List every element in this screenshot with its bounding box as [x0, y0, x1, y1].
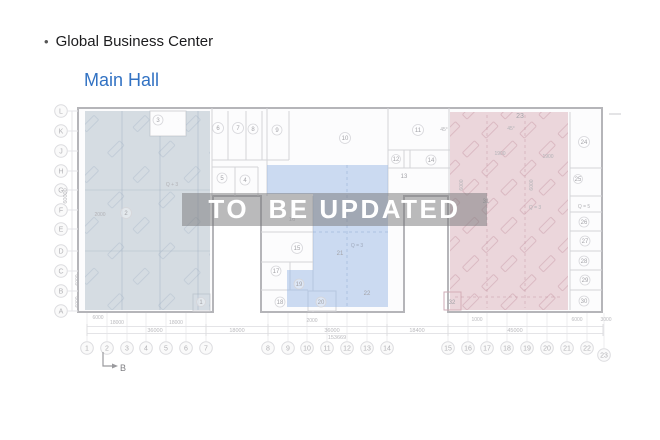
- dimension: 18000: [229, 328, 244, 334]
- dimension: 18000: [110, 320, 124, 326]
- room-label: 26: [581, 220, 588, 226]
- room-label: 29: [582, 278, 589, 284]
- col-label: 23: [600, 352, 608, 359]
- col-label: 19: [523, 345, 531, 352]
- room-label: 18: [277, 300, 284, 306]
- col-label: 9: [286, 345, 290, 352]
- col-label: 21: [563, 345, 571, 352]
- angle-note: 45°: [440, 127, 448, 133]
- col-label: 16: [464, 345, 472, 352]
- dimension: 6000: [571, 317, 582, 323]
- inner-dimension: 1900: [542, 154, 553, 160]
- inner-dimension: 6000: [459, 179, 465, 190]
- dimension: 6000: [75, 274, 81, 285]
- capacity-note: Q = 3: [529, 205, 542, 211]
- dimension: 18000: [169, 320, 183, 326]
- row-label: H: [58, 168, 63, 175]
- row-label: D: [58, 248, 63, 255]
- inner-dimension: 6000: [529, 179, 535, 190]
- watermark-text: TO BE UPDATED: [208, 194, 460, 225]
- room-label: 30: [581, 299, 588, 305]
- dimension: 60000: [63, 188, 69, 203]
- room-label: 13: [401, 174, 408, 180]
- dimension: 1000: [471, 317, 482, 323]
- room-label: 27: [582, 239, 589, 245]
- dimension: 2000: [306, 318, 317, 324]
- slide: • Global Business Center Main Hall: [0, 0, 660, 440]
- row-label: L: [59, 108, 63, 115]
- dimension: 6000: [75, 296, 81, 307]
- col-label: 22: [583, 345, 591, 352]
- col-label: 20: [543, 345, 551, 352]
- row-label: A: [59, 308, 64, 315]
- room-label: 32: [449, 300, 456, 306]
- dimension: 3000: [600, 317, 611, 323]
- room-label: 15: [294, 246, 301, 252]
- capacity-note: Q = 3: [351, 243, 364, 249]
- col-label: 4: [144, 345, 148, 352]
- col-label: 1: [85, 345, 89, 352]
- room-label: 10: [342, 136, 349, 142]
- row-label: E: [59, 226, 64, 233]
- room-label: 21: [337, 251, 344, 257]
- col-label: 13: [363, 345, 371, 352]
- room-label: 20: [318, 300, 325, 306]
- room-label: 28: [581, 259, 588, 265]
- col-label: 8: [266, 345, 270, 352]
- col-label: 11: [323, 345, 330, 352]
- col-label: 14: [383, 345, 391, 352]
- total-dimension: 153669: [328, 335, 346, 341]
- room-label: 24: [581, 140, 588, 146]
- dimension: 36000: [324, 328, 339, 334]
- room-label: 25: [575, 177, 582, 183]
- row-label: K: [59, 128, 64, 135]
- row-label: F: [59, 207, 63, 214]
- dimension: 6000: [92, 315, 103, 321]
- room-label: 17: [273, 269, 280, 275]
- dimension: 18400: [409, 328, 424, 334]
- room-label: 19: [296, 282, 303, 288]
- capacity-note: Q = 5: [578, 204, 591, 210]
- section-marker-label: B: [120, 363, 126, 373]
- capacity-note: Q + 3: [166, 182, 179, 188]
- col-label: 10: [303, 345, 311, 352]
- col-label: 12: [343, 345, 351, 352]
- section-marker: B: [103, 352, 126, 373]
- inner-dimension: 1900: [494, 151, 505, 157]
- watermark-band: TO BE UPDATED: [182, 193, 487, 226]
- col-label: 6: [184, 345, 188, 352]
- row-label: B: [59, 288, 64, 295]
- col-label: 15: [444, 345, 452, 352]
- col-label: 3: [125, 345, 129, 352]
- col-label: 17: [483, 345, 491, 352]
- room-label: 22: [364, 291, 371, 297]
- room-label: 23: [516, 113, 524, 120]
- inner-dimension: 2000: [94, 212, 105, 218]
- room-label: 12: [393, 157, 400, 163]
- col-label: 18: [503, 345, 511, 352]
- dimension: 45000: [507, 328, 522, 334]
- col-label: 5: [164, 345, 168, 352]
- col-label: 7: [204, 345, 208, 352]
- col-label: 2: [105, 345, 109, 352]
- angle-note: 45°: [507, 126, 515, 132]
- room-label: 14: [428, 158, 435, 164]
- dimension: 36000: [147, 328, 162, 334]
- row-label: J: [59, 148, 63, 155]
- row-label: C: [58, 268, 63, 275]
- room-label: 11: [415, 128, 422, 134]
